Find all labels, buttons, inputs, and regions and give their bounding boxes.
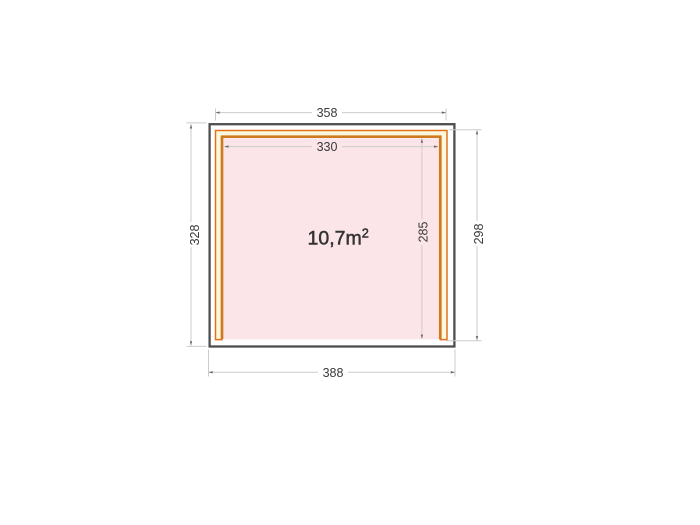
svg-text:298: 298 [472,224,486,245]
svg-text:358: 358 [317,106,338,120]
svg-text:10,7m2: 10,7m2 [308,226,369,250]
svg-text:330: 330 [317,140,338,154]
svg-text:328: 328 [188,225,202,246]
svg-text:285: 285 [417,222,431,243]
svg-text:388: 388 [323,366,344,380]
